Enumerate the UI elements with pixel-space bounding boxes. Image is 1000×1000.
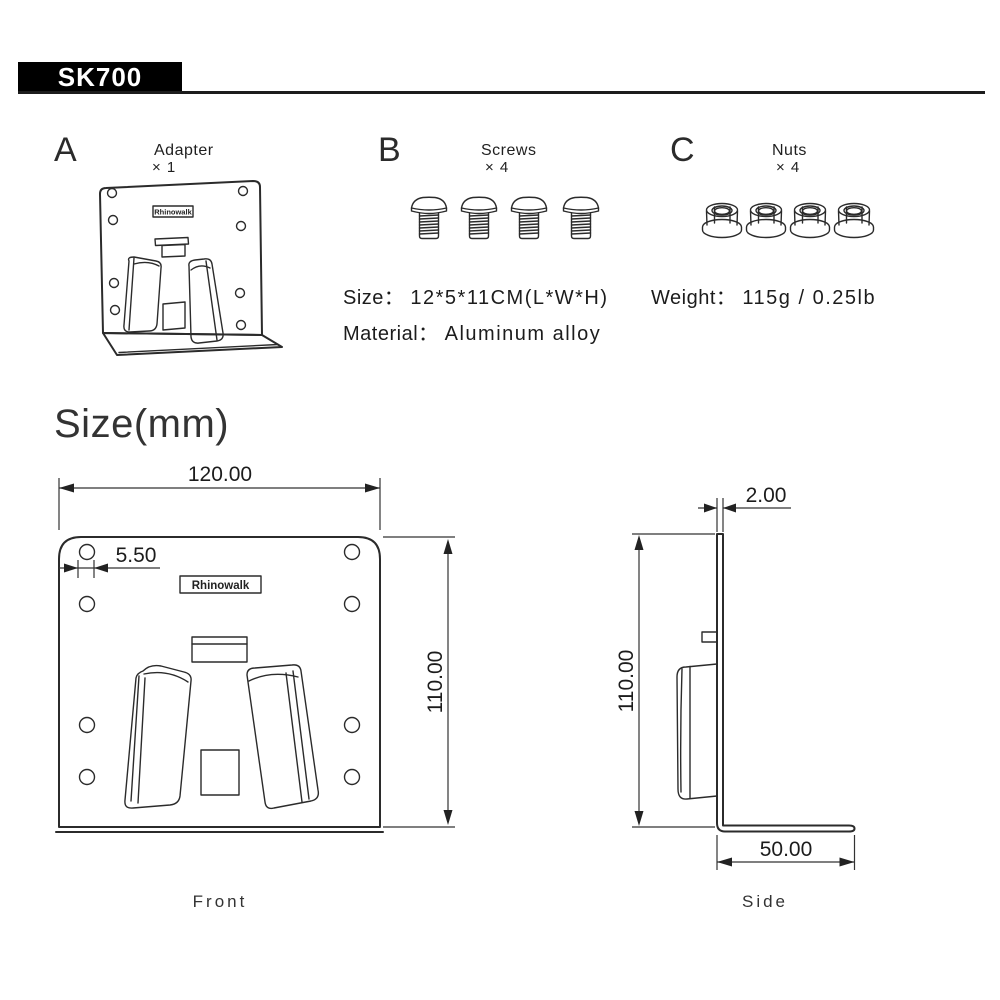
screw-set [412,197,599,238]
screw [512,197,547,238]
adapter-left-rail [124,257,161,332]
side-thickness-value: 2.00 [746,484,787,507]
adapter-square-cutout [163,302,185,330]
nut [791,204,830,238]
material-value: Aluminum alloy [445,323,602,345]
front-height-value: 110.00 [424,651,447,714]
part-a-name: Adapter [154,143,214,159]
front-width-dimension: 120.00 [59,463,380,530]
material-label: Material： [343,323,439,345]
front-width-value: 120.00 [188,463,252,486]
part-c-letter: C [670,133,695,167]
part-a-qty: × 1 [152,160,176,175]
product-spec-sheet: SK700 A Adapter × 1 B Screws × 4 C Nuts … [0,0,1000,1000]
screw [564,197,599,238]
side-depth-value: 50.00 [760,838,813,861]
front-logo-badge: Rhinowalk [180,576,261,593]
spec-size: Size：12*5*11CM(L*W*H) [343,288,609,308]
weight-value: 115g / 0.25lb [742,287,876,309]
model-banner: SK700 [18,62,182,92]
side-height-dimension: 110.00 [615,534,715,827]
side-view-label: Side [742,892,788,911]
adapter-clip [155,238,189,258]
spec-weight: Weight：115g / 0.25lb [651,288,876,308]
side-height-value: 110.00 [615,650,638,713]
spec-material: Material：Aluminum alloy [343,324,601,344]
front-logo-text: Rhinowalk [192,580,250,592]
nut [835,204,874,238]
adapter-drawing: Rhinowalk [85,175,300,375]
front-square-cutout [201,750,239,795]
front-hole-dimension: 5.50 [59,544,160,578]
side-rail-profile [677,664,717,799]
size-label: Size： [343,287,404,309]
nuts-drawing [695,195,885,250]
adapter-logo-badge: Rhinowalk [153,206,193,217]
side-clip [702,632,717,642]
part-b-name: Screws [481,143,536,159]
side-thickness-dimension: 2.00 [698,484,791,532]
nut-set [703,204,874,238]
front-view-label: Front [193,892,248,911]
part-c-qty: × 4 [776,160,800,175]
adapter-right-rail [189,259,223,343]
part-a-letter: A [54,133,77,167]
side-plate [717,534,855,832]
front-right-rail [247,665,318,809]
front-hole-value: 5.50 [116,544,157,567]
screw [412,197,447,238]
weight-label: Weight： [651,287,736,309]
screws-drawing [400,185,610,247]
size-section-title: Size(mm) [54,404,229,444]
nut [747,204,786,238]
front-height-dimension: 110.00 [383,537,455,827]
part-b-letter: B [378,133,401,167]
part-b-qty: × 4 [485,160,509,175]
side-view-drawing: 2.00 110.00 50.00 Side [610,450,890,920]
adapter-logo-text: Rhinowalk [154,208,192,217]
screw [462,197,497,238]
side-depth-dimension: 50.00 [717,835,855,870]
front-clip [192,637,247,662]
header-divider [18,91,985,94]
part-c-name: Nuts [772,143,807,159]
front-left-rail [125,666,191,809]
model-number: SK700 [58,62,143,93]
size-value: 12*5*11CM(L*W*H) [410,287,608,309]
nut [703,204,742,238]
front-view-drawing: Rhinowalk 120.00 [40,450,470,920]
